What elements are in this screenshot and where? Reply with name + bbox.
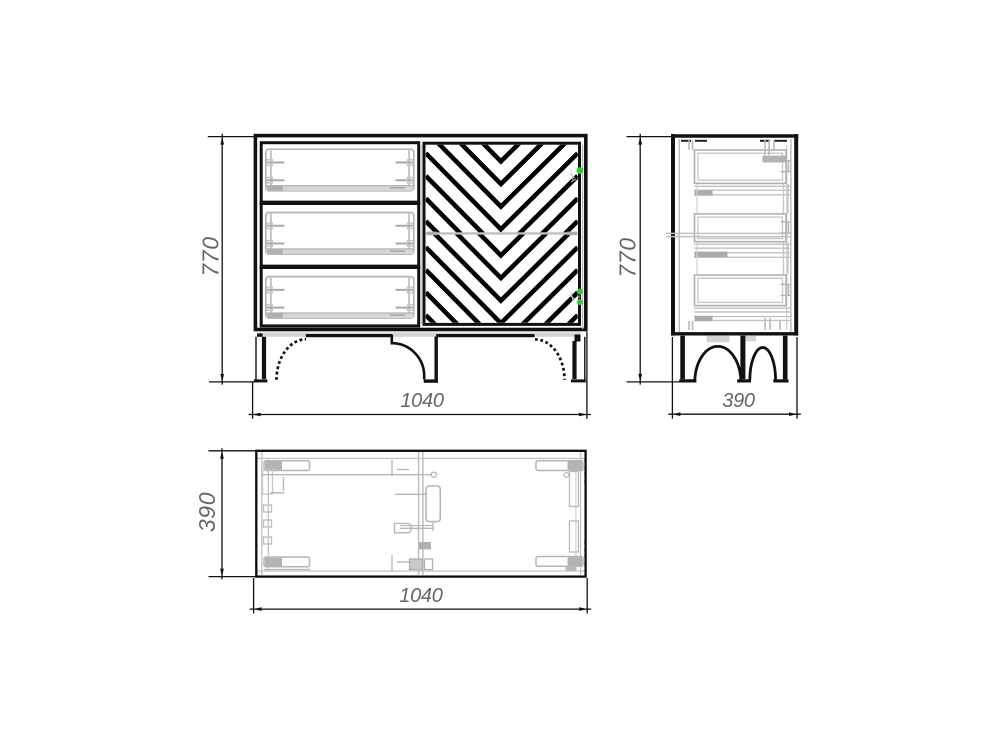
svg-text:1040: 1040 [400, 390, 443, 412]
svg-text:390: 390 [194, 492, 220, 532]
svg-text:770: 770 [615, 237, 641, 277]
svg-text:770: 770 [198, 236, 224, 276]
svg-text:1040: 1040 [399, 585, 442, 607]
svg-text:390: 390 [722, 390, 755, 412]
